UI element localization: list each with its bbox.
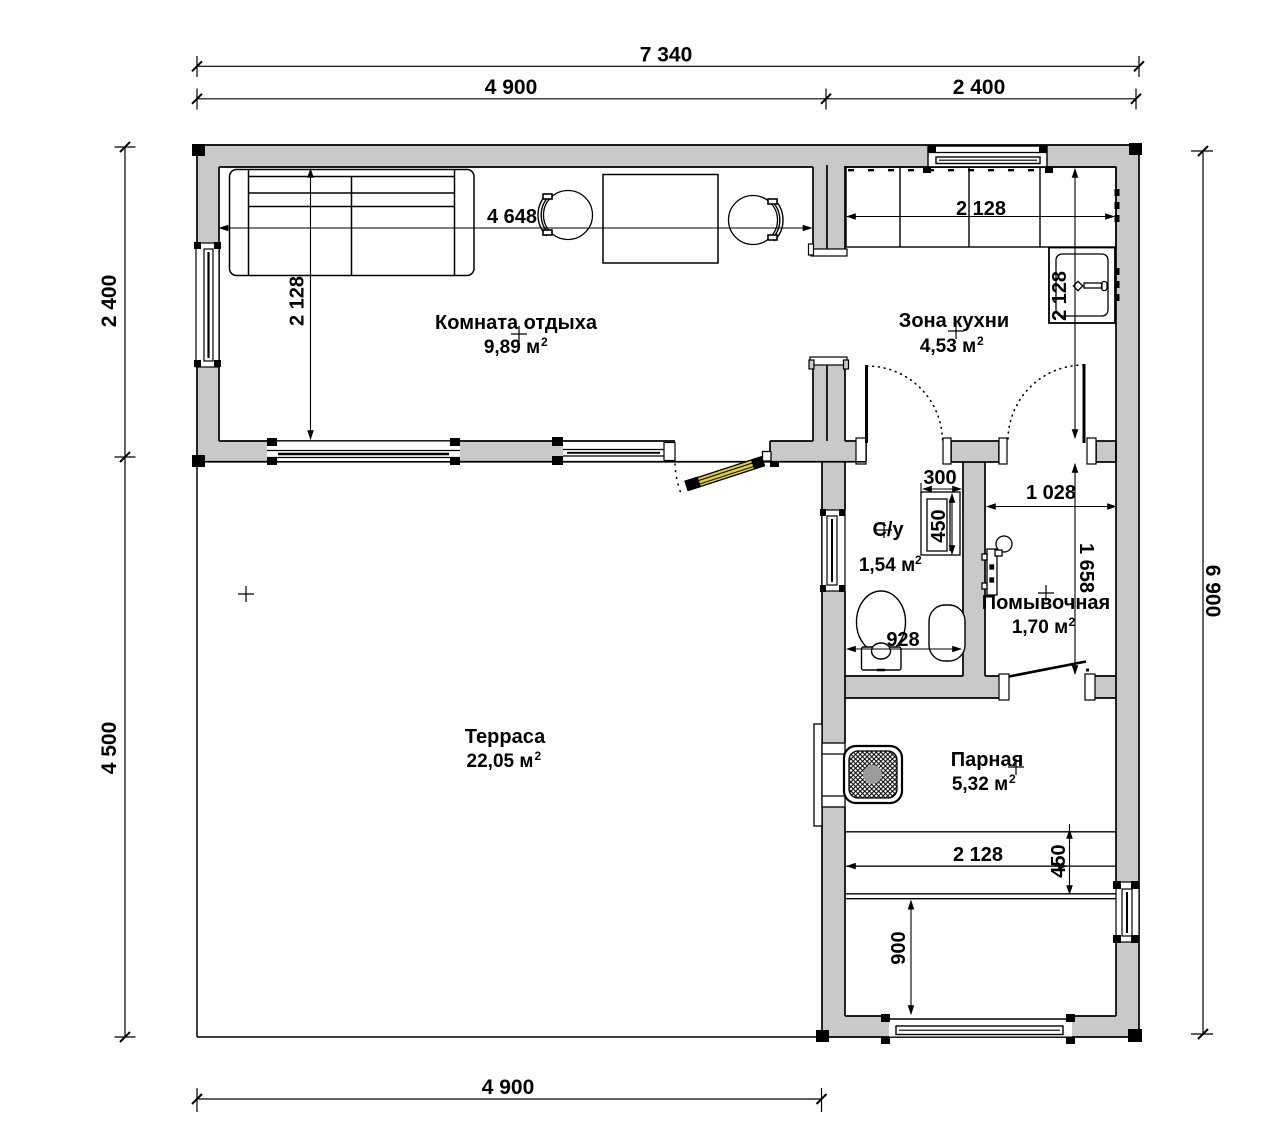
svg-text:Комната отдыха: Комната отдыха: [435, 312, 598, 334]
svg-text:2 128: 2 128: [953, 844, 1003, 866]
svg-text:300: 300: [923, 467, 956, 489]
svg-text:22,05 м: 22,05 м: [467, 751, 534, 772]
svg-text:7 340: 7 340: [640, 44, 693, 67]
svg-text:2: 2: [1069, 615, 1076, 629]
svg-text:4 900: 4 900: [482, 1076, 535, 1099]
svg-text:2 400: 2 400: [98, 275, 121, 328]
svg-text:4,53 м: 4,53 м: [920, 336, 976, 357]
svg-text:Зона кухни: Зона кухни: [899, 310, 1009, 332]
svg-text:450: 450: [928, 509, 950, 542]
svg-text:Терраса: Терраса: [465, 726, 546, 748]
svg-text:Помывочная: Помывочная: [982, 592, 1110, 614]
svg-text:4 648: 4 648: [487, 206, 537, 228]
svg-text:1,54 м: 1,54 м: [859, 555, 915, 576]
svg-text:2 400: 2 400: [953, 76, 1006, 99]
svg-text:900: 900: [888, 931, 910, 964]
svg-text:2: 2: [535, 749, 542, 763]
svg-text:С/у: С/у: [872, 519, 904, 541]
svg-text:1,70 м: 1,70 м: [1012, 617, 1068, 638]
svg-text:2 128: 2 128: [1049, 271, 1071, 321]
svg-text:928: 928: [886, 629, 919, 651]
svg-text:2: 2: [541, 335, 548, 349]
svg-text:9,89 м: 9,89 м: [484, 337, 540, 358]
svg-text:4 500: 4 500: [98, 722, 121, 775]
svg-text:4 900: 4 900: [485, 76, 538, 99]
svg-text:2: 2: [1009, 772, 1016, 786]
svg-text:1 028: 1 028: [1026, 482, 1076, 504]
svg-text:1 658: 1 658: [1075, 543, 1097, 593]
svg-text:2: 2: [915, 553, 922, 567]
svg-text:2 128: 2 128: [287, 276, 309, 326]
svg-text:2 128: 2 128: [956, 198, 1006, 220]
svg-text:2: 2: [977, 334, 984, 348]
svg-text:6 900: 6 900: [1201, 565, 1224, 618]
svg-text:5,32 м: 5,32 м: [952, 774, 1008, 795]
svg-text:450: 450: [1048, 844, 1070, 877]
svg-text:Парная: Парная: [951, 749, 1024, 771]
